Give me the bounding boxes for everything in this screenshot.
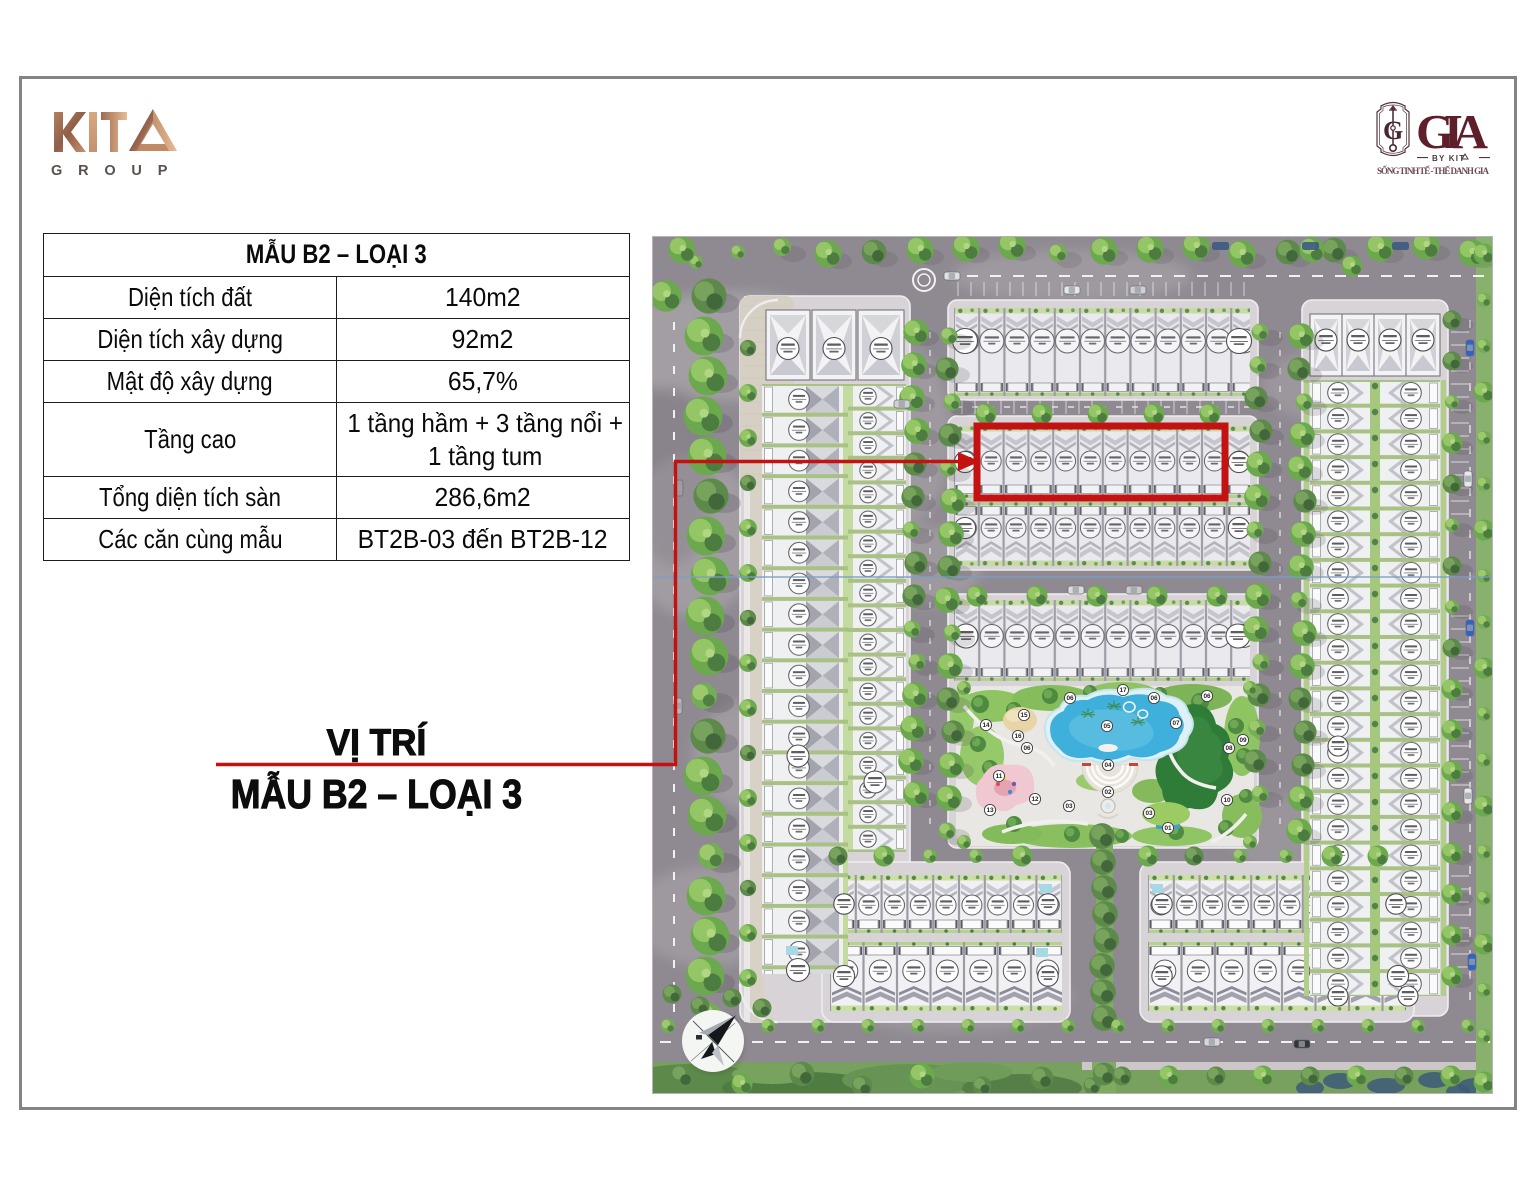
svg-text:05: 05 — [1103, 723, 1111, 730]
svg-text:12: 12 — [1031, 796, 1039, 803]
svg-text:06: 06 — [1150, 695, 1158, 702]
svg-text:10: 10 — [1223, 797, 1231, 804]
svg-text:SỐNG TINH TẾ - THẾ DANH GIA: SỐNG TINH TẾ - THẾ DANH GIA — [1377, 166, 1490, 176]
svg-text:08: 08 — [1225, 745, 1233, 752]
svg-text:02: 02 — [1104, 789, 1112, 796]
svg-text:BY KIT: BY KIT — [1432, 154, 1465, 163]
svg-text:04: 04 — [1104, 762, 1112, 769]
svg-text:01: 01 — [1164, 825, 1172, 832]
svg-text:11: 11 — [996, 773, 1003, 780]
svg-text:GROUP: GROUP — [51, 163, 183, 179]
svg-text:13: 13 — [986, 807, 994, 814]
svg-text:06: 06 — [1203, 693, 1211, 700]
svg-text:GIA: GIA — [1416, 104, 1489, 159]
svg-text:16: 16 — [1014, 733, 1022, 740]
svg-text:14: 14 — [982, 722, 990, 729]
svg-text:15: 15 — [1020, 712, 1028, 719]
svg-text:03: 03 — [1065, 803, 1073, 810]
svg-text:06: 06 — [1066, 695, 1074, 702]
svg-text:07: 07 — [1172, 720, 1180, 727]
svg-text:09: 09 — [1239, 737, 1247, 744]
svg-text:17: 17 — [1119, 687, 1127, 694]
svg-text:06: 06 — [1023, 745, 1031, 752]
svg-text:03: 03 — [1145, 810, 1153, 817]
